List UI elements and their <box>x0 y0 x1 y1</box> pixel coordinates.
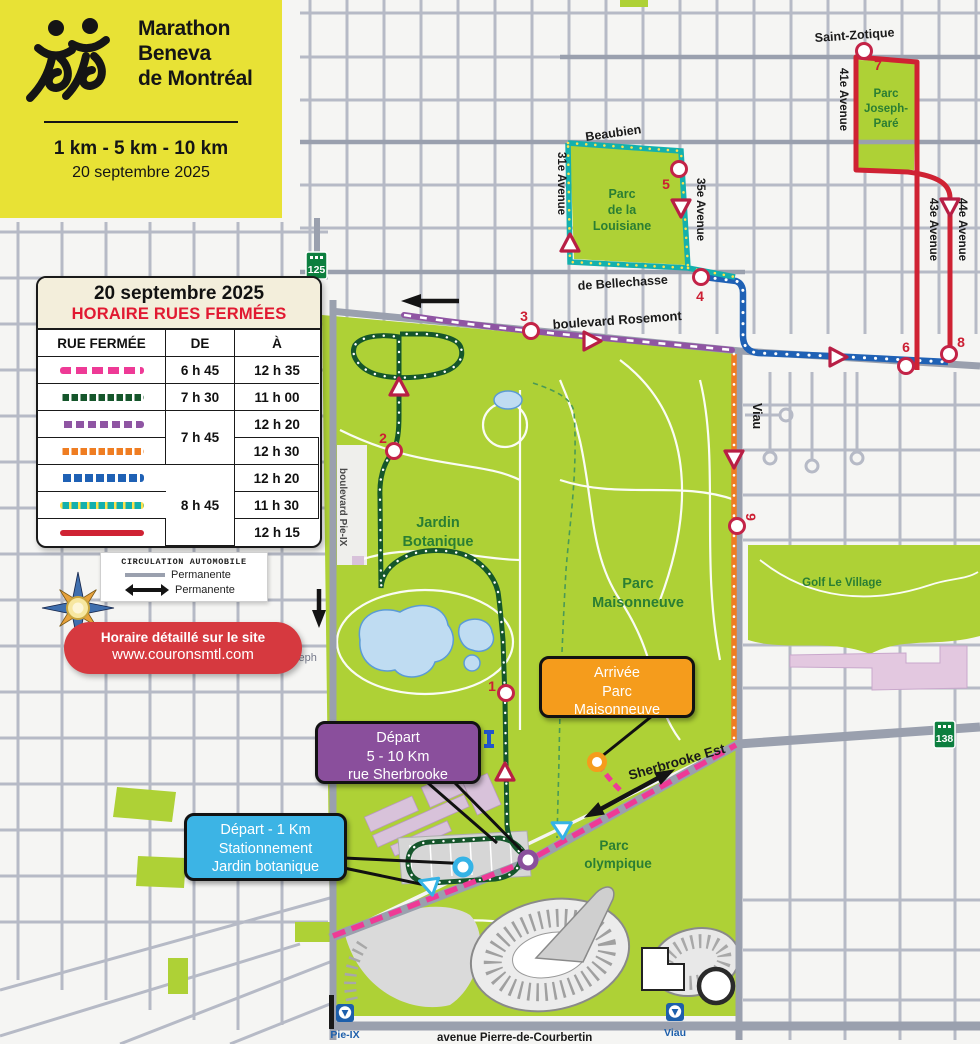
event-header: Marathon Beneva de Montréal 1 km - 5 km … <box>0 0 282 218</box>
street-label-44e-avenue: 44e Avenue <box>956 198 968 261</box>
website-banner[interactable]: Horaire détaillé sur le site www.courons… <box>64 622 302 674</box>
metro-station-pie-ix <box>336 1004 354 1022</box>
svg-text:Louisiane: Louisiane <box>593 219 651 233</box>
golf-area <box>748 545 980 654</box>
street-label-viau: Viau <box>750 403 764 429</box>
time-de: 6 h 45 <box>166 357 235 384</box>
svg-text:Botanique: Botanique <box>403 534 474 550</box>
time-de: 7 h 45 <box>166 411 235 465</box>
event-distances: 1 km - 5 km - 10 km <box>0 138 282 160</box>
event-date: 20 septembre 2025 <box>0 164 282 182</box>
runners-logo-icon <box>8 14 128 114</box>
gray-road-swatch <box>125 573 165 577</box>
street-label-31e-avenue: 31e Avenue <box>555 152 567 215</box>
km-marker-6: 6 <box>902 339 910 355</box>
park-label-golf: Golf Le Village <box>802 577 882 589</box>
callout-line: Arrivée <box>542 664 692 683</box>
callout-line: Jardin botanique <box>187 858 344 877</box>
legend-item-label: Permanente <box>175 584 235 596</box>
schedule-header: 20 septembre 2025 HORAIRE RUES FERMÉES <box>38 278 320 330</box>
col-header-rue: RUE FERMÉE <box>38 330 166 357</box>
callout-depart-1km: Départ - 1 Km Stationnement Jardin botan… <box>184 813 347 881</box>
banner-text: Horaire détaillé sur le site <box>64 630 302 645</box>
callout-line: Départ <box>318 729 478 748</box>
km-marker-4: 4 <box>696 288 704 304</box>
svg-text:Joseph-: Joseph- <box>864 103 908 115</box>
km-marker-3: 3 <box>520 308 528 324</box>
park-label-olympique: Parc <box>599 838 629 853</box>
metro-station-viau <box>666 1003 684 1021</box>
event-title-line1: Marathon <box>138 16 253 41</box>
swatch-rosemont-purple <box>38 411 166 438</box>
time-a: 11 h 30 <box>235 492 319 519</box>
km-marker-8: 8 <box>957 334 965 350</box>
schedule-date: 20 septembre 2025 <box>38 283 320 305</box>
svg-text:Maisonneuve: Maisonneuve <box>592 595 684 611</box>
parc-joseph-pare-area <box>858 60 916 170</box>
svg-text:de la: de la <box>608 203 638 217</box>
time-a: 12 h 20 <box>235 411 319 438</box>
callout-line: Stationnement <box>187 840 344 859</box>
park-label-maisonneuve: Parc <box>622 576 653 592</box>
depart-5-10km-point <box>520 852 536 868</box>
time-de: 7 h 30 <box>166 384 235 411</box>
arrivee-point <box>590 755 605 770</box>
circulation-legend: CIRCULATION AUTOMOBILE Permanente Perman… <box>100 552 268 602</box>
metro-label-viau: Viau <box>664 1027 686 1039</box>
park-label-joseph-pare: Parc <box>874 88 900 100</box>
metro-label-pie-ix: Pie-IX <box>330 1029 359 1041</box>
callout-line: rue Sherbrooke <box>318 766 478 785</box>
time-a: 12 h 20 <box>235 465 319 492</box>
callout-line: Maisonneuve <box>542 701 692 720</box>
website-link[interactable]: www.couronsmtl.com <box>64 646 302 663</box>
svg-text:Paré: Paré <box>874 118 899 130</box>
km-marker-5: 5 <box>662 176 670 192</box>
km-marker-1: 1 <box>488 678 496 694</box>
street-label-boulevard-pie-ix: boulevard Pie-IX <box>337 468 348 547</box>
callout-line: Départ - 1 Km <box>187 821 344 840</box>
col-header-de: DE <box>166 330 235 357</box>
km-marker-7: 7 <box>874 57 882 73</box>
swatch-sherbrooke-pink <box>38 357 166 384</box>
svg-text:138: 138 <box>936 733 954 745</box>
street-label-41e-avenue: 41e Avenue <box>837 68 849 131</box>
schedule-title: HORAIRE RUES FERMÉES <box>38 305 320 324</box>
event-title-line2: Beneva <box>138 41 253 66</box>
km-marker-2: 2 <box>379 430 387 446</box>
schedule-table: RUE FERMÉE DE À 6 h 45 12 h 35 7 h 30 11… <box>38 330 320 546</box>
svg-text:olympique: olympique <box>584 856 652 871</box>
street-label-pierre-de-courbertin: avenue Pierre-de-Courbertin <box>437 1032 592 1044</box>
time-a: 12 h 35 <box>235 357 319 384</box>
swatch-louisiane-teal <box>38 492 166 519</box>
round-building <box>699 969 733 1003</box>
highway-shield-125: 125 <box>306 252 327 279</box>
depart-1km-point <box>455 859 471 875</box>
event-title-line3: de Montréal <box>138 66 253 91</box>
time-de: 8 h 45 <box>166 465 235 546</box>
street-label-35e-avenue: 35e Avenue <box>694 178 706 241</box>
col-header-a: À <box>235 330 319 357</box>
marathon-map-page: { "colors": { "brand_yellow": "#e8e235",… <box>0 0 980 1044</box>
road-closure-schedule: 20 septembre 2025 HORAIRE RUES FERMÉES R… <box>36 276 322 548</box>
divider <box>44 121 238 123</box>
park-label-jardin-botanique: Jardin <box>416 515 460 531</box>
callout-arrivee: Arrivée Parc Maisonneuve <box>539 656 695 718</box>
swatch-avenues-red <box>38 519 166 546</box>
legend-title: CIRCULATION AUTOMOBILE <box>107 557 261 567</box>
double-arrow-icon <box>125 584 169 596</box>
highway-shield-138: 138 <box>934 721 955 748</box>
time-a: 12 h 30 <box>235 438 319 465</box>
swatch-rosemont-est-blue <box>38 465 166 492</box>
callout-line: 5 - 10 Km <box>318 748 478 767</box>
callout-depart-5-10km: Départ 5 - 10 Km rue Sherbrooke <box>315 721 481 784</box>
park-label-louisiane: Parc <box>608 187 635 201</box>
time-a: 12 h 15 <box>235 519 319 546</box>
callout-line: Parc <box>542 683 692 702</box>
svg-text:125: 125 <box>308 264 326 276</box>
time-a: 11 h 00 <box>235 384 319 411</box>
swatch-viau-orange <box>38 438 166 465</box>
street-label-43e-avenue: 43e Avenue <box>927 198 939 261</box>
km-marker-9: 9 <box>743 513 759 521</box>
swatch-jardin-green <box>38 384 166 411</box>
legend-item-label: Permanente <box>171 569 231 581</box>
